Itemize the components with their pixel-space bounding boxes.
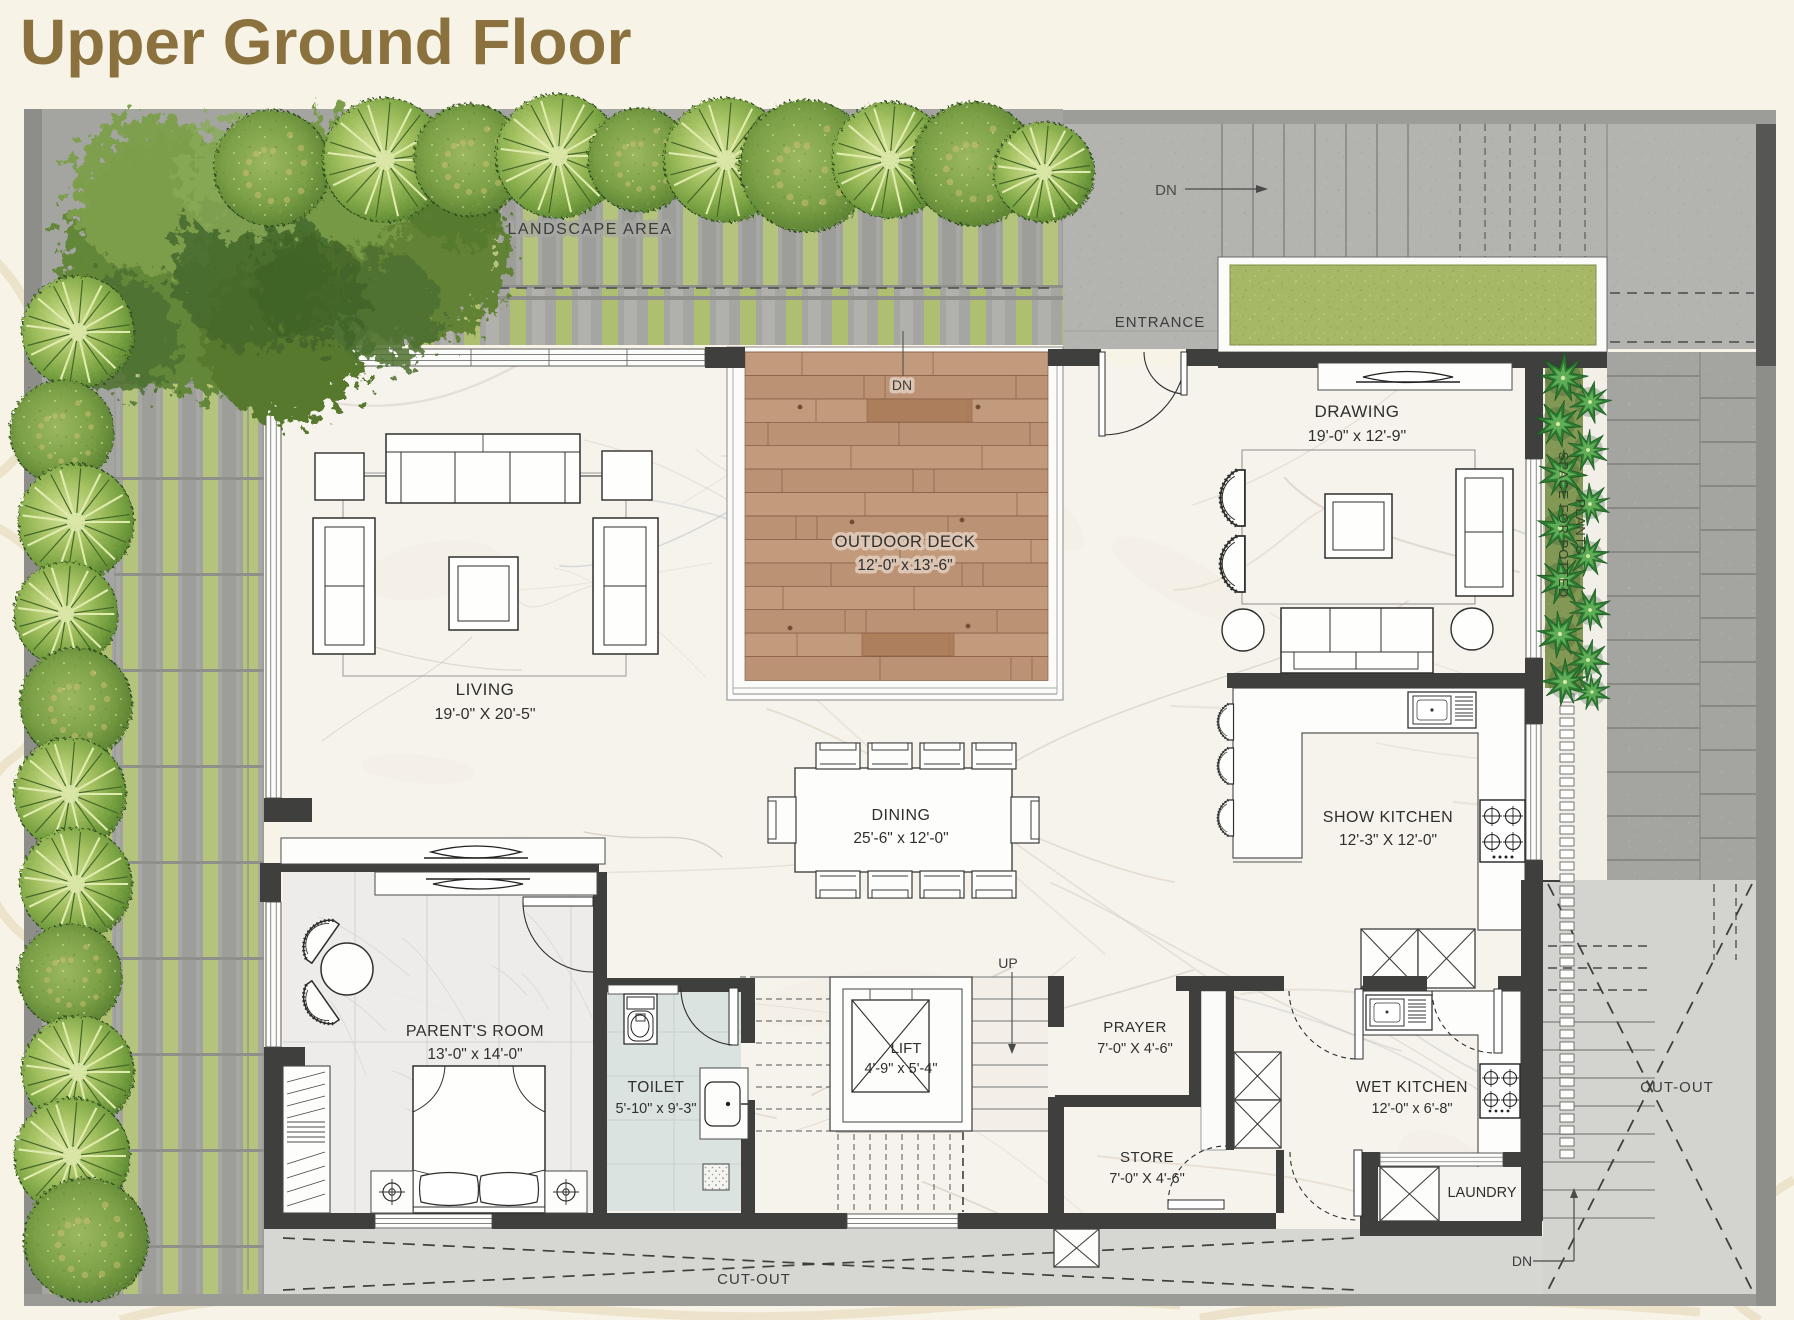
svg-text:7'-0" X 4'-6": 7'-0" X 4'-6"	[1109, 1171, 1184, 1187]
svg-text:TOILET: TOILET	[628, 1079, 685, 1096]
svg-text:Upper Ground Floor: Upper Ground Floor	[20, 6, 632, 78]
svg-text:PARENT'S ROOM: PARENT'S ROOM	[406, 1023, 544, 1040]
svg-text:25'-6" x 12'-0": 25'-6" x 12'-0"	[853, 830, 948, 847]
svg-text:12'-3" X 12'-0": 12'-3" X 12'-0"	[1339, 832, 1437, 849]
svg-text:ENTRANCE: ENTRANCE	[1115, 314, 1206, 331]
svg-text:LANDSCAPE AREA: LANDSCAPE AREA	[507, 221, 672, 238]
svg-text:PRAYER: PRAYER	[1103, 1019, 1167, 1036]
svg-text:DN: DN	[892, 377, 912, 393]
svg-text:19'-0" X 20'-5": 19'-0" X 20'-5"	[434, 706, 535, 723]
svg-text:STORE: STORE	[1120, 1149, 1174, 1166]
svg-text:DRAWING: DRAWING	[1314, 402, 1399, 421]
svg-text:LIVING: LIVING	[456, 680, 515, 699]
svg-text:LIFT: LIFT	[891, 1040, 922, 1057]
svg-text:DN: DN	[1155, 182, 1177, 199]
svg-text:12'-0" x 13'-6": 12'-0" x 13'-6"	[857, 557, 952, 574]
svg-text:5'-10" x 9'-3": 5'-10" x 9'-3"	[615, 1101, 696, 1117]
svg-text:4'-9" x 5'-4": 4'-9" x 5'-4"	[864, 1061, 937, 1077]
svg-text:7'-0" X 4'-6": 7'-0" X 4'-6"	[1097, 1041, 1172, 1057]
svg-text:CUT-OUT: CUT-OUT	[717, 1271, 791, 1288]
svg-text:PLANTS: PLANTS	[1573, 499, 1588, 556]
svg-text:DN: DN	[1512, 1253, 1532, 1269]
svg-text:SPACE FOR POTTED: SPACE FOR POTTED	[1556, 452, 1571, 599]
svg-text:19'-0" x 12'-9": 19'-0" x 12'-9"	[1308, 428, 1406, 445]
svg-text:SHOW KITCHEN: SHOW KITCHEN	[1323, 809, 1453, 826]
svg-text:CUT-OUT: CUT-OUT	[1640, 1079, 1714, 1096]
svg-text:OUTDOOR DECK: OUTDOOR DECK	[835, 533, 976, 551]
svg-text:WET KITCHEN: WET KITCHEN	[1356, 1079, 1468, 1096]
svg-text:DINING: DINING	[872, 807, 931, 824]
svg-text:UP: UP	[998, 955, 1017, 971]
svg-text:12'-0" x 6'-8": 12'-0" x 6'-8"	[1371, 1101, 1452, 1117]
svg-text:13'-0" x 14'-0": 13'-0" x 14'-0"	[427, 1046, 522, 1063]
svg-text:LAUNDRY: LAUNDRY	[1447, 1185, 1516, 1201]
